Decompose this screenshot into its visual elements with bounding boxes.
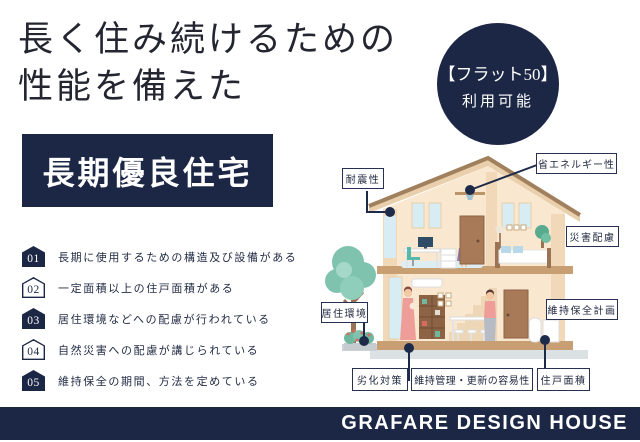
exterior-window: [384, 216, 396, 258]
footer-bar: GRAFARE DESIGN HOUSE: [0, 407, 640, 440]
label-rekka-taisaku: 劣化対策: [352, 368, 408, 391]
label-sho-energy: 省エネルギー性: [536, 153, 617, 174]
label-taishinsei: 耐震性: [342, 168, 384, 189]
label-iji-hozen-keikaku: 維持保全計画: [546, 299, 618, 320]
label-juko-menseki: 住戸面積: [537, 368, 590, 391]
door-2f: [460, 216, 484, 264]
brand-logo-text: GRAFARE DESIGN HOUSE: [0, 407, 640, 440]
label-kyoju-kankyo: 居住環境: [321, 302, 368, 323]
label-iji-kanri-koshin: 維持管理・更新の容易性: [411, 368, 533, 391]
entrance-door: [389, 277, 402, 339]
label-saigai-hairyo: 災害配慮: [566, 226, 619, 247]
